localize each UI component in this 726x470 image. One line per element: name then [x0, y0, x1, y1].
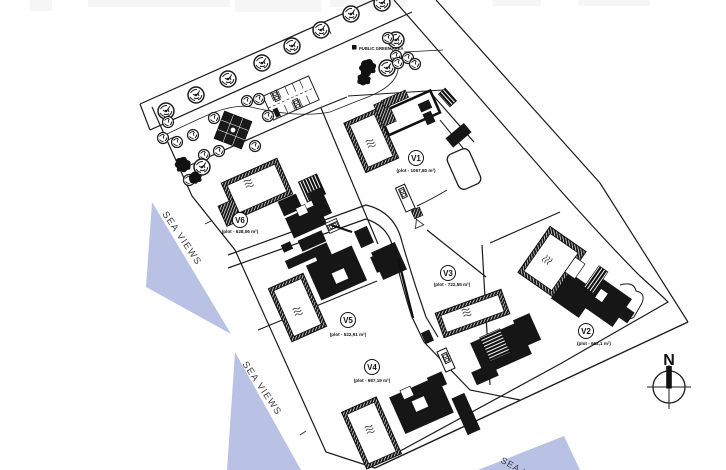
svg-text:N: N [663, 352, 675, 369]
svg-text:V2: V2 [581, 327, 591, 336]
svg-text:(plot - 628,06 m²): (plot - 628,06 m²) [222, 229, 259, 234]
svg-text:(plot - 522,91 m²): (plot - 522,91 m²) [330, 332, 367, 337]
svg-text:(plot - 722,55 m²): (plot - 722,55 m²) [434, 282, 471, 287]
svg-text:V5: V5 [343, 316, 353, 325]
svg-text:(plot - 987,19 m²): (plot - 987,19 m²) [354, 378, 391, 383]
svg-text:(plot - 1067,80 m²): (plot - 1067,80 m²) [396, 168, 436, 173]
svg-text:V6: V6 [235, 216, 245, 225]
svg-text:V3: V3 [443, 269, 453, 278]
svg-text:PUBLIC GREEN AREA: PUBLIC GREEN AREA [359, 46, 404, 51]
svg-text:(plot - 952,1 m²): (plot - 952,1 m²) [577, 341, 611, 346]
svg-text:V1: V1 [411, 154, 421, 163]
svg-text:V4: V4 [367, 363, 377, 372]
